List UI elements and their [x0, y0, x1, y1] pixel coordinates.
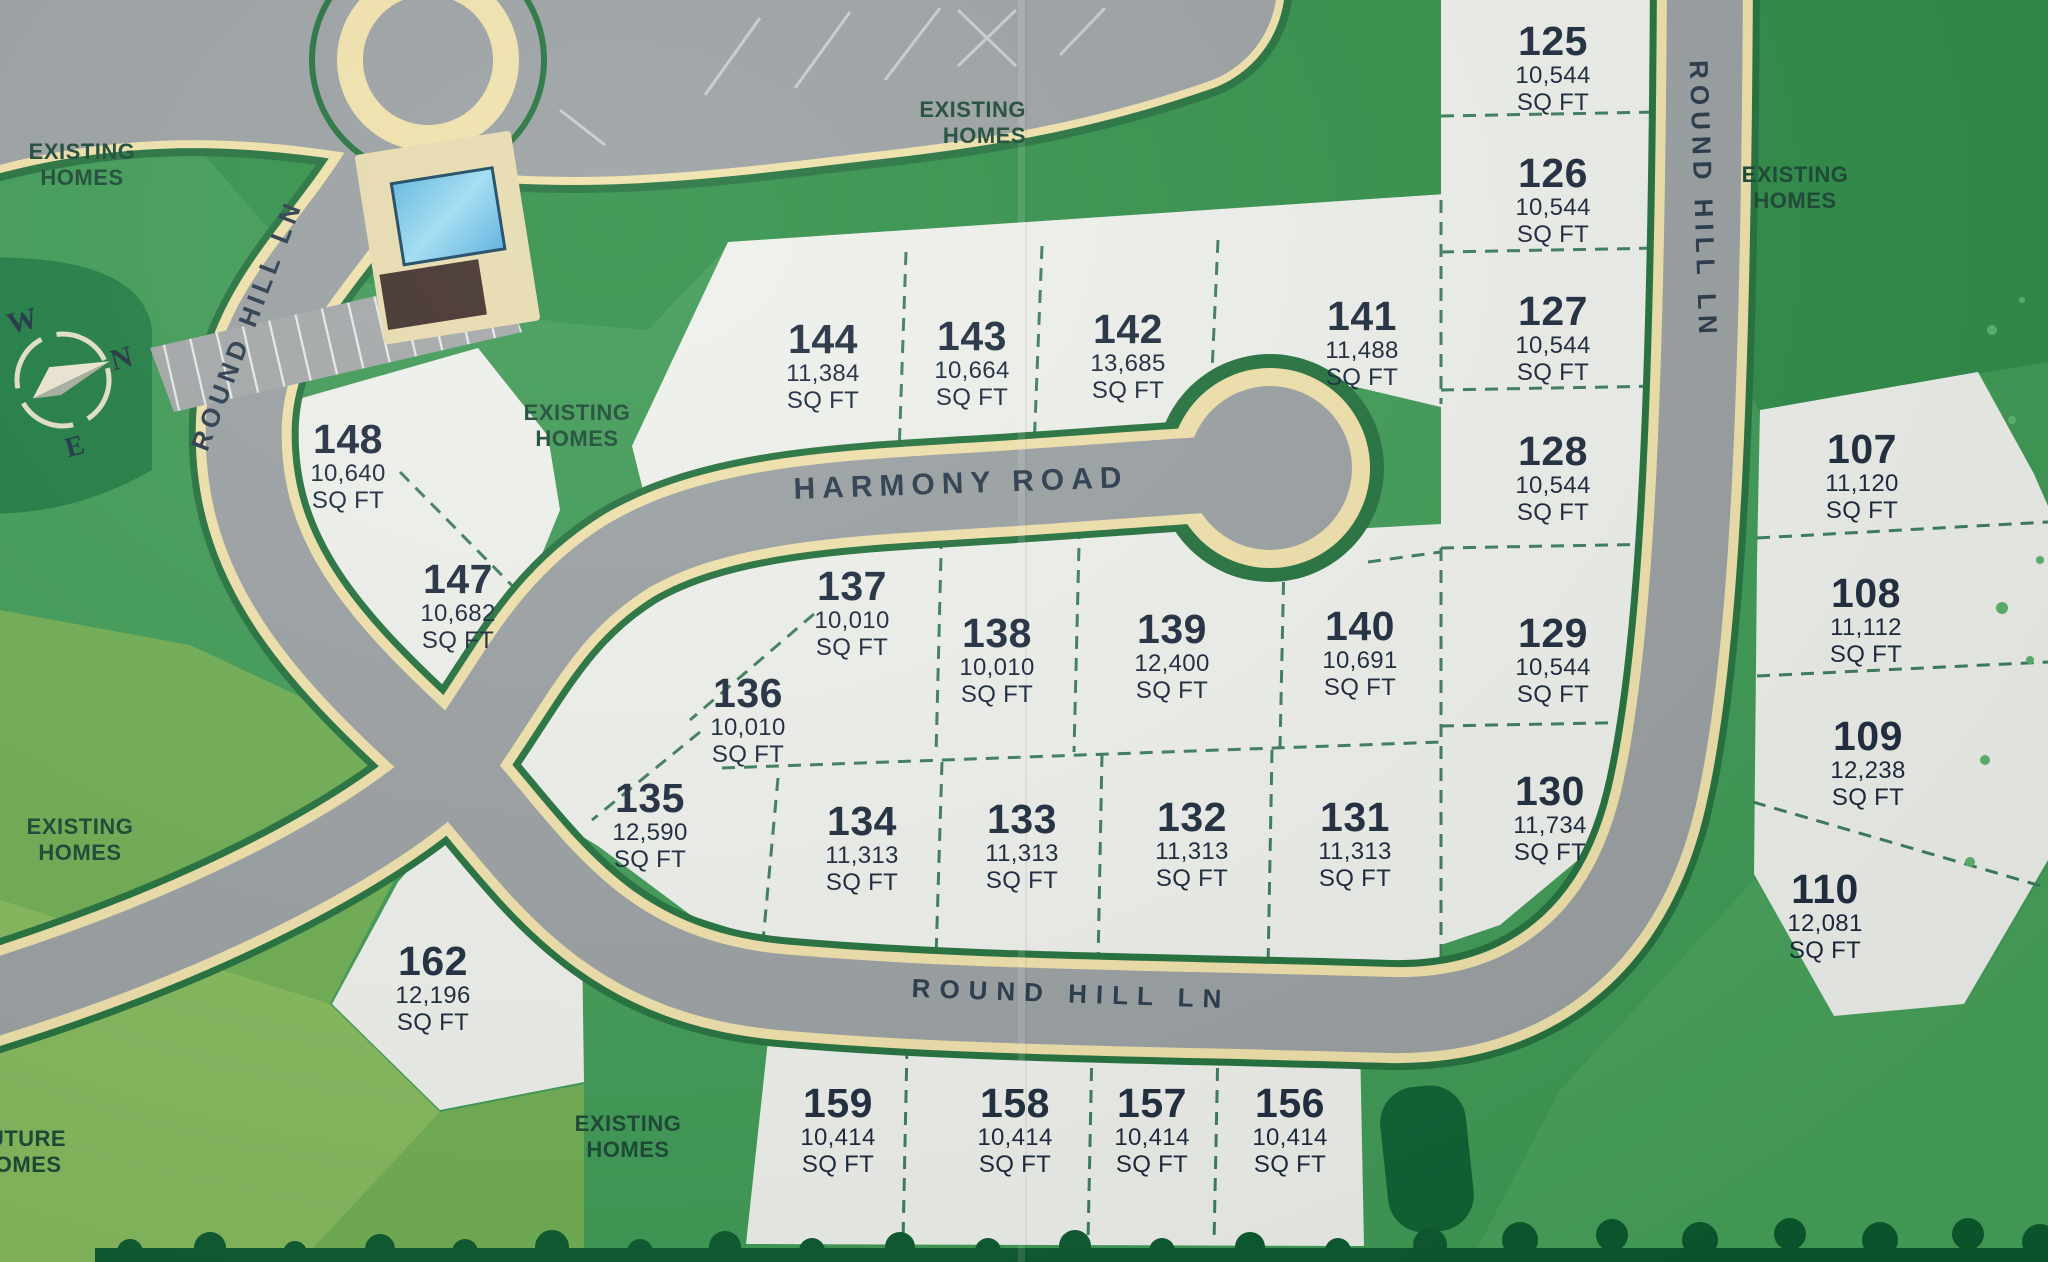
- lot-area-unit: SQ FT: [814, 634, 889, 661]
- lot-number: 129: [1515, 612, 1590, 654]
- lot-label-162: 16212,196SQ FT: [395, 940, 470, 1036]
- lot-label-139: 13912,400SQ FT: [1134, 608, 1209, 704]
- lot-number: 132: [1155, 796, 1228, 838]
- lot-area-unit: SQ FT: [612, 846, 687, 873]
- lot-area: 11,313: [825, 842, 898, 869]
- lot-number: 157: [1114, 1082, 1189, 1124]
- future-homes-corner: FUTURE HOMES: [0, 1126, 100, 1178]
- lot-area-unit: SQ FT: [985, 867, 1058, 894]
- lot-area-unit: SQ FT: [1825, 497, 1898, 524]
- lot-area: 11,734: [1513, 812, 1586, 839]
- lot-number: 142: [1090, 308, 1165, 350]
- lot-area: 10,664: [934, 357, 1009, 384]
- lot-label-127: 12710,544SQ FT: [1515, 290, 1590, 386]
- lot-area: 12,238: [1830, 757, 1905, 784]
- lot-area-unit: SQ FT: [420, 627, 495, 654]
- lot-label-126: 12610,544SQ FT: [1515, 152, 1590, 248]
- lot-number: 137: [814, 565, 889, 607]
- lot-area: 11,313: [1155, 838, 1228, 865]
- lot-area: 10,640: [310, 460, 385, 487]
- lot-area-unit: SQ FT: [786, 387, 859, 414]
- lot-area: 10,414: [977, 1124, 1052, 1151]
- lot-area: 12,081: [1787, 910, 1862, 937]
- lot-number: 134: [825, 800, 898, 842]
- existing-homes-near-pool: EXISTING HOMES: [506, 400, 648, 452]
- lot-area-unit: SQ FT: [977, 1151, 1052, 1178]
- lot-label-137: 13710,010SQ FT: [814, 565, 889, 661]
- lot-number: 162: [395, 940, 470, 982]
- lot-label-147: 14710,682SQ FT: [420, 558, 495, 654]
- lot-area-unit: SQ FT: [1515, 681, 1590, 708]
- lot-area: 11,313: [985, 840, 1058, 867]
- lot-area-unit: SQ FT: [710, 741, 785, 768]
- lot-area: 10,010: [959, 654, 1034, 681]
- lot-area: 11,112: [1830, 614, 1902, 641]
- lot-area-unit: SQ FT: [1155, 865, 1228, 892]
- lot-area-unit: SQ FT: [1830, 784, 1905, 811]
- lot-label-129: 12910,544SQ FT: [1515, 612, 1590, 708]
- lot-number: 109: [1830, 715, 1905, 757]
- lot-area: 12,196: [395, 982, 470, 1009]
- lot-area: 10,414: [800, 1124, 875, 1151]
- lot-number: 158: [977, 1082, 1052, 1124]
- existing-homes-top-left: EXISTING HOMES: [11, 139, 153, 191]
- lot-area-unit: SQ FT: [1252, 1151, 1327, 1178]
- lot-area: 13,685: [1090, 350, 1165, 377]
- lot-area-unit: SQ FT: [1090, 377, 1165, 404]
- lot-number: 133: [985, 798, 1058, 840]
- lot-number: 138: [959, 612, 1034, 654]
- lot-number: 141: [1325, 295, 1398, 337]
- lot-number: 139: [1134, 608, 1209, 650]
- lot-area: 10,010: [710, 714, 785, 741]
- lot-area-unit: SQ FT: [1515, 359, 1590, 386]
- lot-area: 10,010: [814, 607, 889, 634]
- lot-number: 107: [1825, 428, 1898, 470]
- lot-label-108: 10811,112SQ FT: [1830, 572, 1902, 668]
- lot-number: 144: [786, 318, 859, 360]
- lot-area-unit: SQ FT: [395, 1009, 470, 1036]
- lot-number: 148: [310, 418, 385, 460]
- lot-number: 136: [710, 672, 785, 714]
- lot-number: 156: [1252, 1082, 1327, 1124]
- lot-number: 135: [612, 777, 687, 819]
- lot-area-unit: SQ FT: [1515, 89, 1590, 116]
- lot-label-157: 15710,414SQ FT: [1114, 1082, 1189, 1178]
- lot-number: 128: [1515, 430, 1590, 472]
- lot-number: 126: [1515, 152, 1590, 194]
- lot-label-132: 13211,313SQ FT: [1155, 796, 1228, 892]
- lot-label-156: 15610,414SQ FT: [1252, 1082, 1327, 1178]
- lot-area: 11,488: [1325, 337, 1398, 364]
- lot-area-unit: SQ FT: [959, 681, 1034, 708]
- lot-area-unit: SQ FT: [1830, 641, 1902, 668]
- lot-area-unit: SQ FT: [1134, 677, 1209, 704]
- lot-label-109: 10912,238SQ FT: [1830, 715, 1905, 811]
- lot-label-125: 12510,544SQ FT: [1515, 20, 1590, 116]
- lot-area: 10,544: [1515, 62, 1590, 89]
- lot-label-158: 15810,414SQ FT: [977, 1082, 1052, 1178]
- clubhouse-and-pool: [354, 130, 540, 344]
- lot-area-unit: SQ FT: [825, 869, 898, 896]
- lot-area-unit: SQ FT: [934, 384, 1009, 411]
- lot-area-unit: SQ FT: [1318, 865, 1391, 892]
- lot-label-143: 14310,664SQ FT: [934, 315, 1009, 411]
- lot-area: 10,682: [420, 600, 495, 627]
- lot-label-142: 14213,685SQ FT: [1090, 308, 1165, 404]
- lot-area-unit: SQ FT: [800, 1151, 875, 1178]
- lot-label-148: 14810,640SQ FT: [310, 418, 385, 514]
- lot-label-128: 12810,544SQ FT: [1515, 430, 1590, 526]
- lot-label-107: 10711,120SQ FT: [1825, 428, 1898, 524]
- lot-label-144: 14411,384SQ FT: [786, 318, 859, 414]
- lot-area-unit: SQ FT: [1787, 937, 1862, 964]
- lot-label-136: 13610,010SQ FT: [710, 672, 785, 768]
- existing-homes-left-lower: EXISTING HOMES: [9, 814, 151, 866]
- lot-area: 12,400: [1134, 650, 1209, 677]
- lot-number: 125: [1515, 20, 1590, 62]
- lot-number: 159: [800, 1082, 875, 1124]
- lot-area: 10,414: [1252, 1124, 1327, 1151]
- lot-number: 110: [1787, 868, 1862, 910]
- existing-homes-bottom: EXISTING HOMES: [557, 1111, 699, 1163]
- swimming-pool: [391, 168, 505, 265]
- lot-area-unit: SQ FT: [1322, 674, 1397, 701]
- lot-area-unit: SQ FT: [1513, 839, 1586, 866]
- lot-label-135: 13512,590SQ FT: [612, 777, 687, 873]
- existing-homes-right: EXISTING HOMES: [1724, 162, 1866, 214]
- lot-area: 10,544: [1515, 332, 1590, 359]
- lot-label-140: 14010,691SQ FT: [1322, 605, 1397, 701]
- lot-number: 131: [1318, 796, 1391, 838]
- lot-area: 10,544: [1515, 194, 1590, 221]
- lot-label-130: 13011,734SQ FT: [1513, 770, 1586, 866]
- lot-number: 108: [1830, 572, 1902, 614]
- lot-label-133: 13311,313SQ FT: [985, 798, 1058, 894]
- lot-label-141: 14111,488SQ FT: [1325, 295, 1398, 391]
- subdivision-map: N W E S HARMONY ROAD ROUND HILL LN ROUND…: [0, 0, 2048, 1262]
- lot-number: 147: [420, 558, 495, 600]
- lot-area-unit: SQ FT: [1114, 1151, 1189, 1178]
- lot-label-159: 15910,414SQ FT: [800, 1082, 875, 1178]
- lot-number: 140: [1322, 605, 1397, 647]
- lot-area: 10,414: [1114, 1124, 1189, 1151]
- lot-number: 127: [1515, 290, 1590, 332]
- lot-area-unit: SQ FT: [1515, 499, 1590, 526]
- lot-number: 143: [934, 315, 1009, 357]
- lot-area-unit: SQ FT: [310, 487, 385, 514]
- lot-area: 10,544: [1515, 472, 1590, 499]
- lot-area: 11,313: [1318, 838, 1391, 865]
- lot-area: 11,120: [1825, 470, 1898, 497]
- lot-label-131: 13111,313SQ FT: [1318, 796, 1391, 892]
- lot-label-110: 11012,081SQ FT: [1787, 868, 1862, 964]
- lot-label-138: 13810,010SQ FT: [959, 612, 1034, 708]
- lot-area: 11,384: [786, 360, 859, 387]
- lot-label-134: 13411,313SQ FT: [825, 800, 898, 896]
- lot-area-unit: SQ FT: [1325, 364, 1398, 391]
- lot-area: 10,691: [1322, 647, 1397, 674]
- lot-number: 130: [1513, 770, 1586, 812]
- lot-area: 10,544: [1515, 654, 1590, 681]
- existing-homes-top-middle: EXISTING HOMES: [870, 97, 1026, 149]
- lot-area: 12,590: [612, 819, 687, 846]
- lot-area-unit: SQ FT: [1515, 221, 1590, 248]
